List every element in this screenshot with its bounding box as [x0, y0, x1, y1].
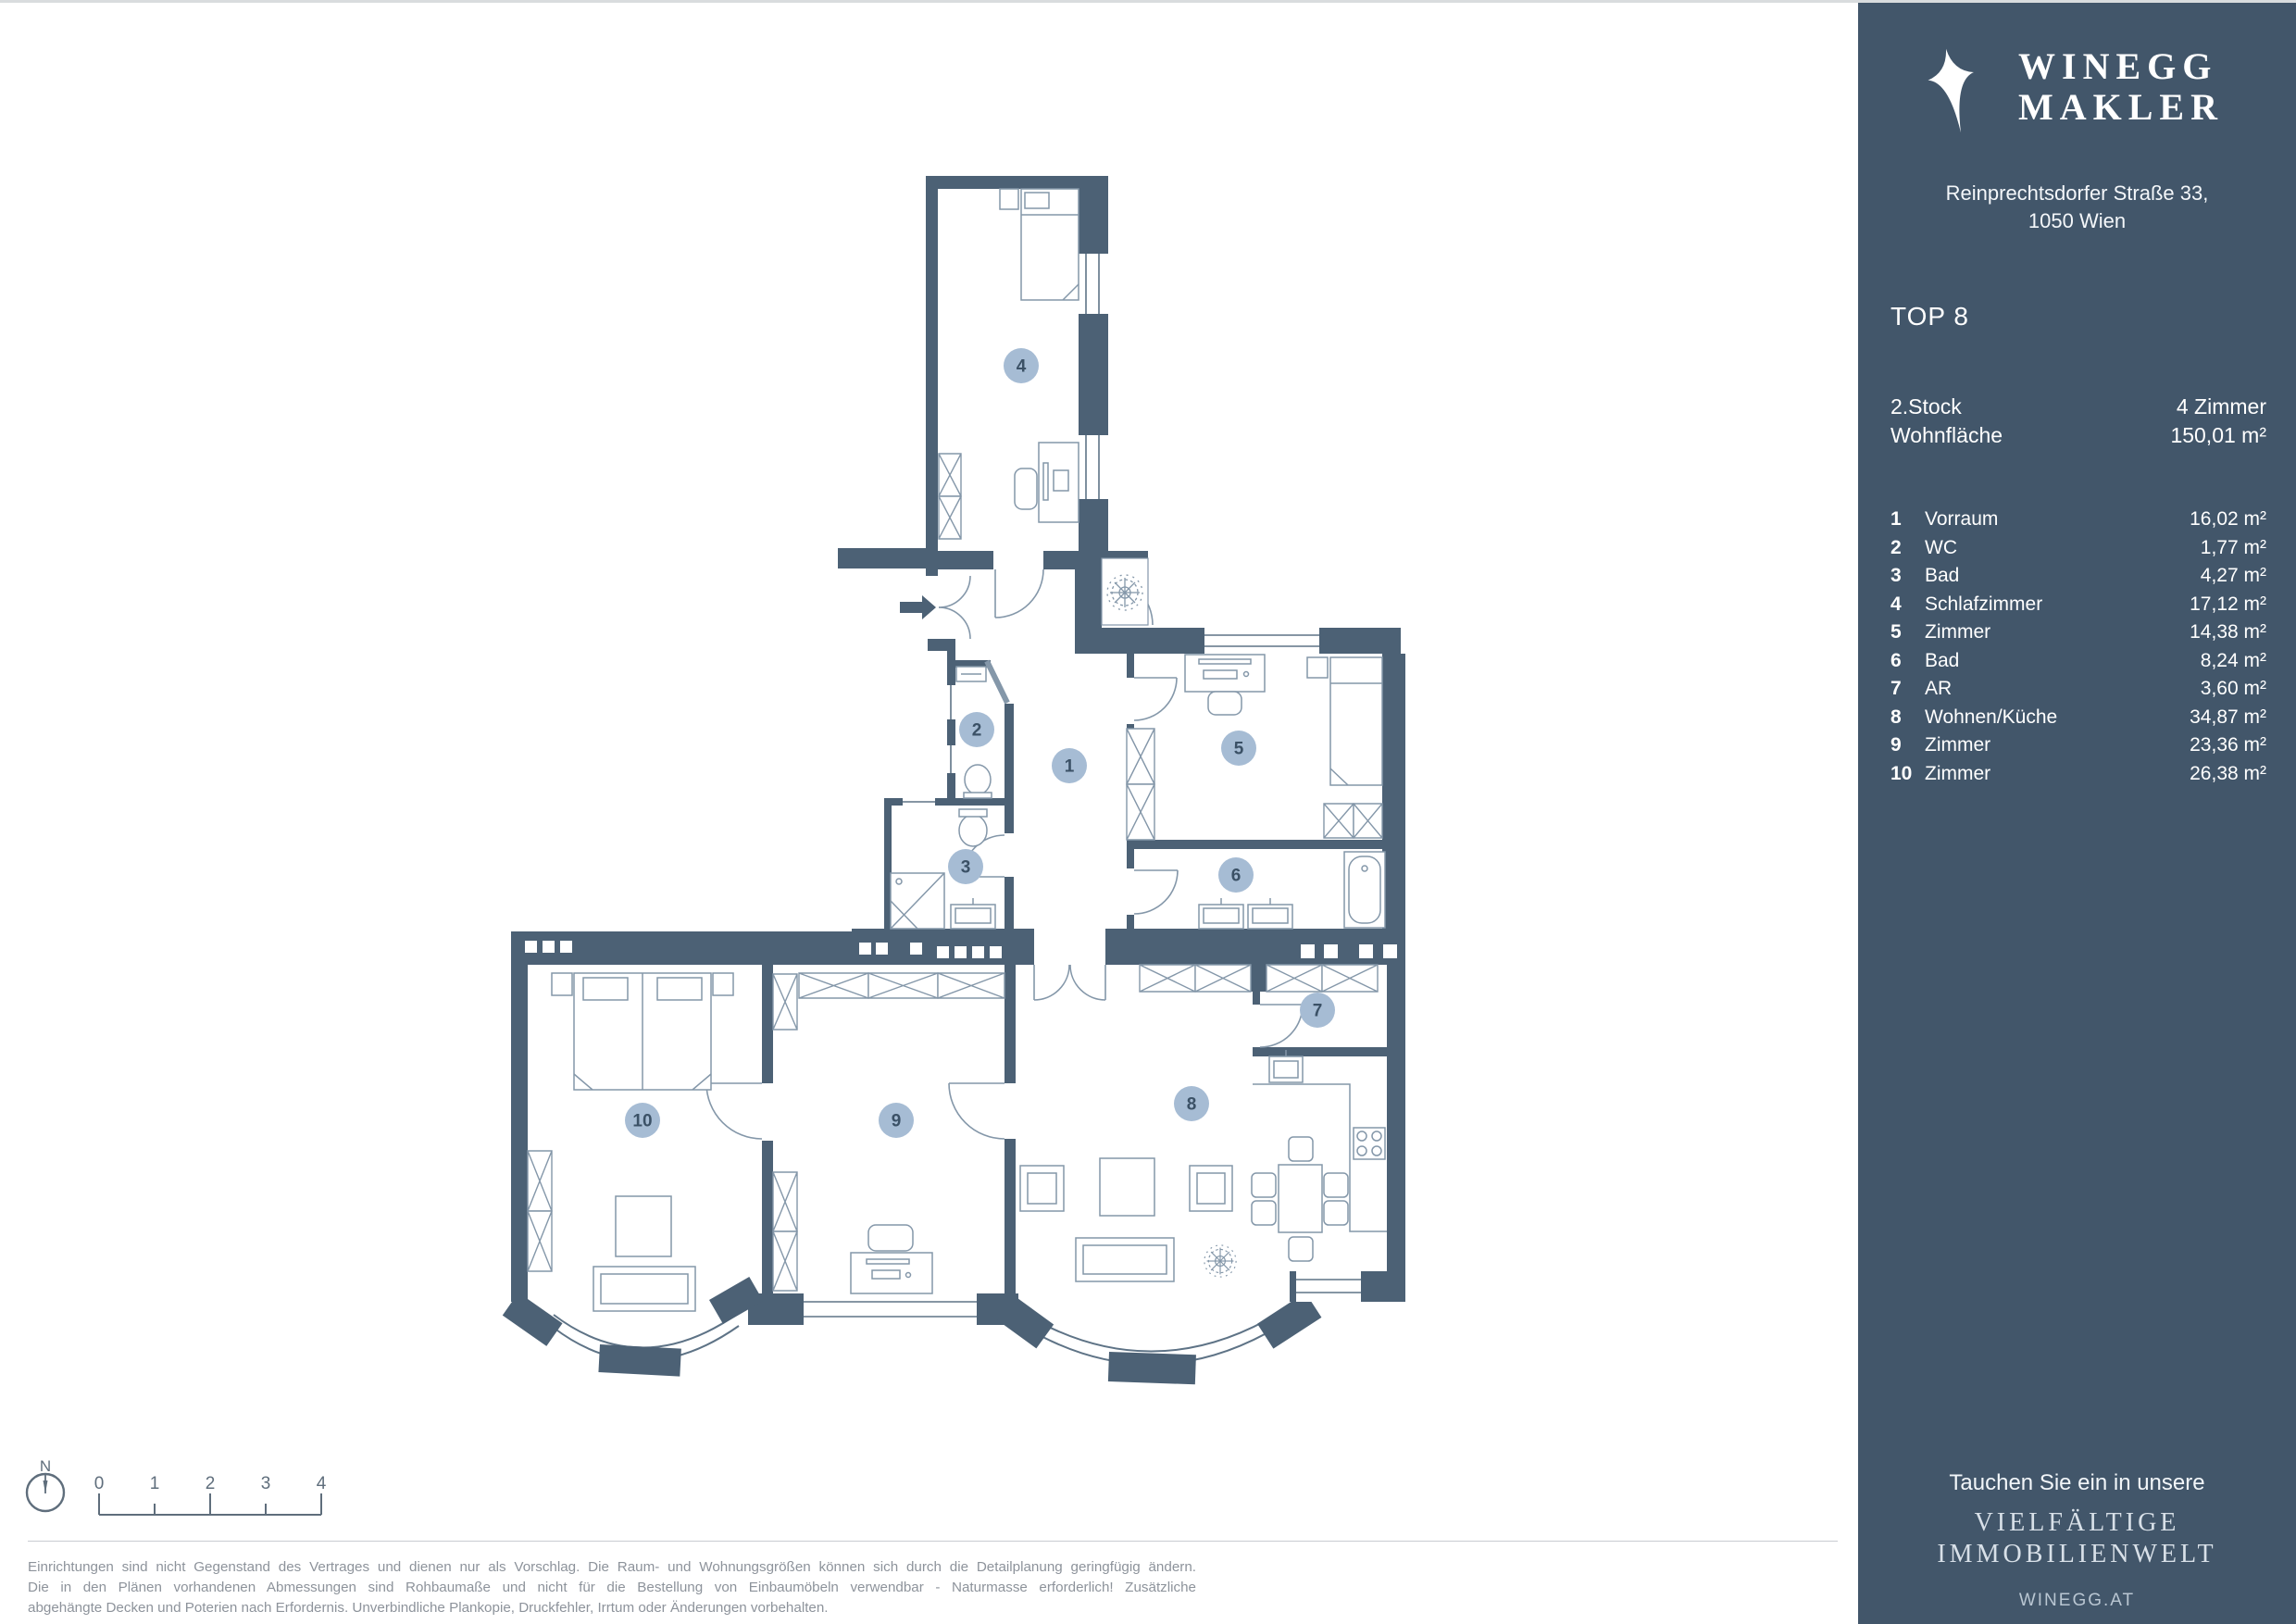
footer-headline-2: IMMOBILIENWELT	[1858, 1539, 2296, 1570]
room-area: 1,77 m²	[2201, 534, 2266, 563]
fact-area-label: Wohnfläche	[1890, 421, 2003, 450]
room-area: 23,36 m²	[2190, 731, 2266, 760]
room-number: 4	[1890, 591, 1925, 619]
room-list-row: 8Wohnen/Küche34,87 m²	[1890, 704, 2266, 732]
brand-line-1: WINEGG	[2018, 46, 2224, 87]
room-list-row: 4Schlafzimmer17,12 m²	[1890, 591, 2266, 619]
info-sidebar: WINEGG MAKLER Reinprechtsdorfer Straße 3…	[1858, 0, 2296, 1624]
room-label-number: 3	[961, 858, 971, 878]
room-name: Zimmer	[1925, 618, 2190, 647]
room-list-row: 3Bad4,27 m²	[1890, 562, 2266, 591]
room-name: Schlafzimmer	[1925, 591, 2190, 619]
room-name: Bad	[1925, 647, 2201, 676]
room-label-number: 1	[1065, 757, 1075, 777]
room6-sinks	[1199, 898, 1292, 929]
room4-desk	[1015, 443, 1079, 522]
room5-bed	[1307, 657, 1382, 785]
brand-line-2: MAKLER	[2018, 87, 2224, 128]
room5-desk	[1185, 655, 1265, 715]
room6-bathtub	[1344, 852, 1385, 928]
room-name: WC	[1925, 534, 2201, 563]
room-name: AR	[1925, 675, 2201, 704]
room8-coffee-table	[1100, 1158, 1154, 1216]
room-area: 4,27 m²	[2201, 562, 2266, 591]
walls	[511, 176, 1405, 1325]
room-name: Bad	[1925, 562, 2201, 591]
room-area: 3,60 m²	[2201, 675, 2266, 704]
compass-north-label: N	[40, 1457, 51, 1475]
room-number: 3	[1890, 562, 1925, 591]
disclaimer-line-2: Die in den Plänen vorhandenen Abmessunge…	[28, 1578, 1196, 1598]
room-label-number: 10	[632, 1112, 652, 1131]
room10-sofa	[593, 1267, 695, 1311]
room9-desk	[851, 1225, 932, 1293]
room-number: 1	[1890, 506, 1925, 534]
room-list: 1Vorraum16,02 m²2WC1,77 m²3Bad4,27 m²4Sc…	[1890, 506, 2266, 788]
room-label-number: 9	[892, 1112, 902, 1131]
floorplan-canvas: 12345678910 N 01234 Einrichtungen sind n…	[0, 0, 1858, 1624]
brand-logo: WINEGG MAKLER	[1858, 0, 2296, 133]
room-area: 34,87 m²	[2190, 704, 2266, 732]
scale-bar	[99, 1493, 321, 1515]
north-compass-icon	[27, 1474, 64, 1511]
unit-facts: 2.Stock 4 Zimmer Wohnfläche 150,01 m²	[1890, 393, 2266, 450]
room-list-row: 5Zimmer14,38 m²	[1890, 618, 2266, 647]
furniture	[552, 189, 1387, 1311]
scale-number: 3	[261, 1474, 271, 1493]
fact-row-floor: 2.Stock 4 Zimmer	[1890, 393, 2266, 421]
room-area: 16,02 m²	[2190, 506, 2266, 534]
room10-bed	[552, 973, 733, 1090]
address-line-1: Reinprechtsdorfer Straße 33,	[1858, 180, 2296, 207]
room-list-row: 9Zimmer23,36 m²	[1890, 731, 2266, 760]
room-number: 10	[1890, 760, 1925, 789]
room4-bed	[1000, 189, 1079, 300]
room-list-row: 2WC1,77 m²	[1890, 534, 2266, 563]
room-number: 7	[1890, 675, 1925, 704]
room-labels: 12345678910	[625, 348, 1335, 1138]
room-list-row: 7AR3,60 m²	[1890, 675, 2266, 704]
brand-name: WINEGG MAKLER	[2018, 46, 2224, 128]
compass-star-icon	[1928, 48, 1979, 133]
unit-title: TOP 8	[1890, 302, 2266, 331]
fact-row-area: Wohnfläche 150,01 m²	[1890, 421, 2266, 450]
disclaimer-text: Einrichtungen sind nicht Gegenstand des …	[28, 1557, 1196, 1618]
room-number: 9	[1890, 731, 1925, 760]
room-label-number: 4	[1017, 357, 1027, 377]
room-label-number: 8	[1187, 1095, 1197, 1115]
room-name: Wohnen/Küche	[1925, 704, 2190, 732]
room-number: 5	[1890, 618, 1925, 647]
room10-table	[616, 1196, 671, 1256]
room8-dining	[1252, 1137, 1348, 1261]
footer-headline: VIELFÄLTIGE IMMOBILIENWELT	[1858, 1507, 2296, 1570]
fact-rooms-value: 4 Zimmer	[2177, 393, 2266, 421]
disclaimer-line-3: abgehängte Decken und Poterien nach Erfo…	[28, 1598, 1196, 1618]
address-line-2: 1050 Wien	[1858, 207, 2296, 235]
top-border-strip	[0, 0, 2296, 3]
room-name: Vorraum	[1925, 506, 2190, 534]
room-label-number: 7	[1313, 1002, 1323, 1021]
room-list-row: 10Zimmer26,38 m²	[1890, 760, 2266, 789]
fact-floor-label: 2.Stock	[1890, 393, 1962, 421]
room-area: 14,38 m²	[2190, 618, 2266, 647]
property-address: Reinprechtsdorfer Straße 33, 1050 Wien	[1858, 180, 2296, 235]
scale-numbers: 01234	[94, 1474, 327, 1493]
room-number: 8	[1890, 704, 1925, 732]
disclaimer-line-1: Einrichtungen sind nicht Gegenstand des …	[28, 1557, 1196, 1578]
floor-plan: 12345678910 N 01234	[0, 0, 1858, 1624]
fact-area-value: 150,01 m²	[2170, 421, 2266, 450]
room-label-number: 5	[1234, 740, 1244, 759]
room-label-number: 2	[972, 721, 982, 741]
room-number: 2	[1890, 534, 1925, 563]
footer-tagline: Tauchen Sie ein in unsere	[1858, 1470, 2296, 1496]
scale-number: 1	[150, 1474, 160, 1493]
room-name: Zimmer	[1925, 731, 2190, 760]
room-list-row: 6Bad8,24 m²	[1890, 647, 2266, 676]
room8-sofa	[1076, 1238, 1174, 1281]
scale-number: 4	[317, 1474, 327, 1493]
scale-number: 0	[94, 1474, 105, 1493]
scale-number: 2	[206, 1474, 216, 1493]
footer-website: WINEGG.AT	[1858, 1591, 2296, 1611]
footer-headline-1: VIELFÄLTIGE	[1858, 1507, 2296, 1539]
room-list-row: 1Vorraum16,02 m²	[1890, 506, 2266, 534]
room-area: 17,12 m²	[2190, 591, 2266, 619]
footer-divider	[28, 1541, 1838, 1542]
room-area: 8,24 m²	[2201, 647, 2266, 676]
room-area: 26,38 m²	[2190, 760, 2266, 789]
room-number: 6	[1890, 647, 1925, 676]
room-label-number: 6	[1231, 867, 1242, 886]
room-name: Zimmer	[1925, 760, 2190, 789]
sidebar-footer: Tauchen Sie ein in unsere VIELFÄLTIGE IM…	[1858, 1470, 2296, 1611]
